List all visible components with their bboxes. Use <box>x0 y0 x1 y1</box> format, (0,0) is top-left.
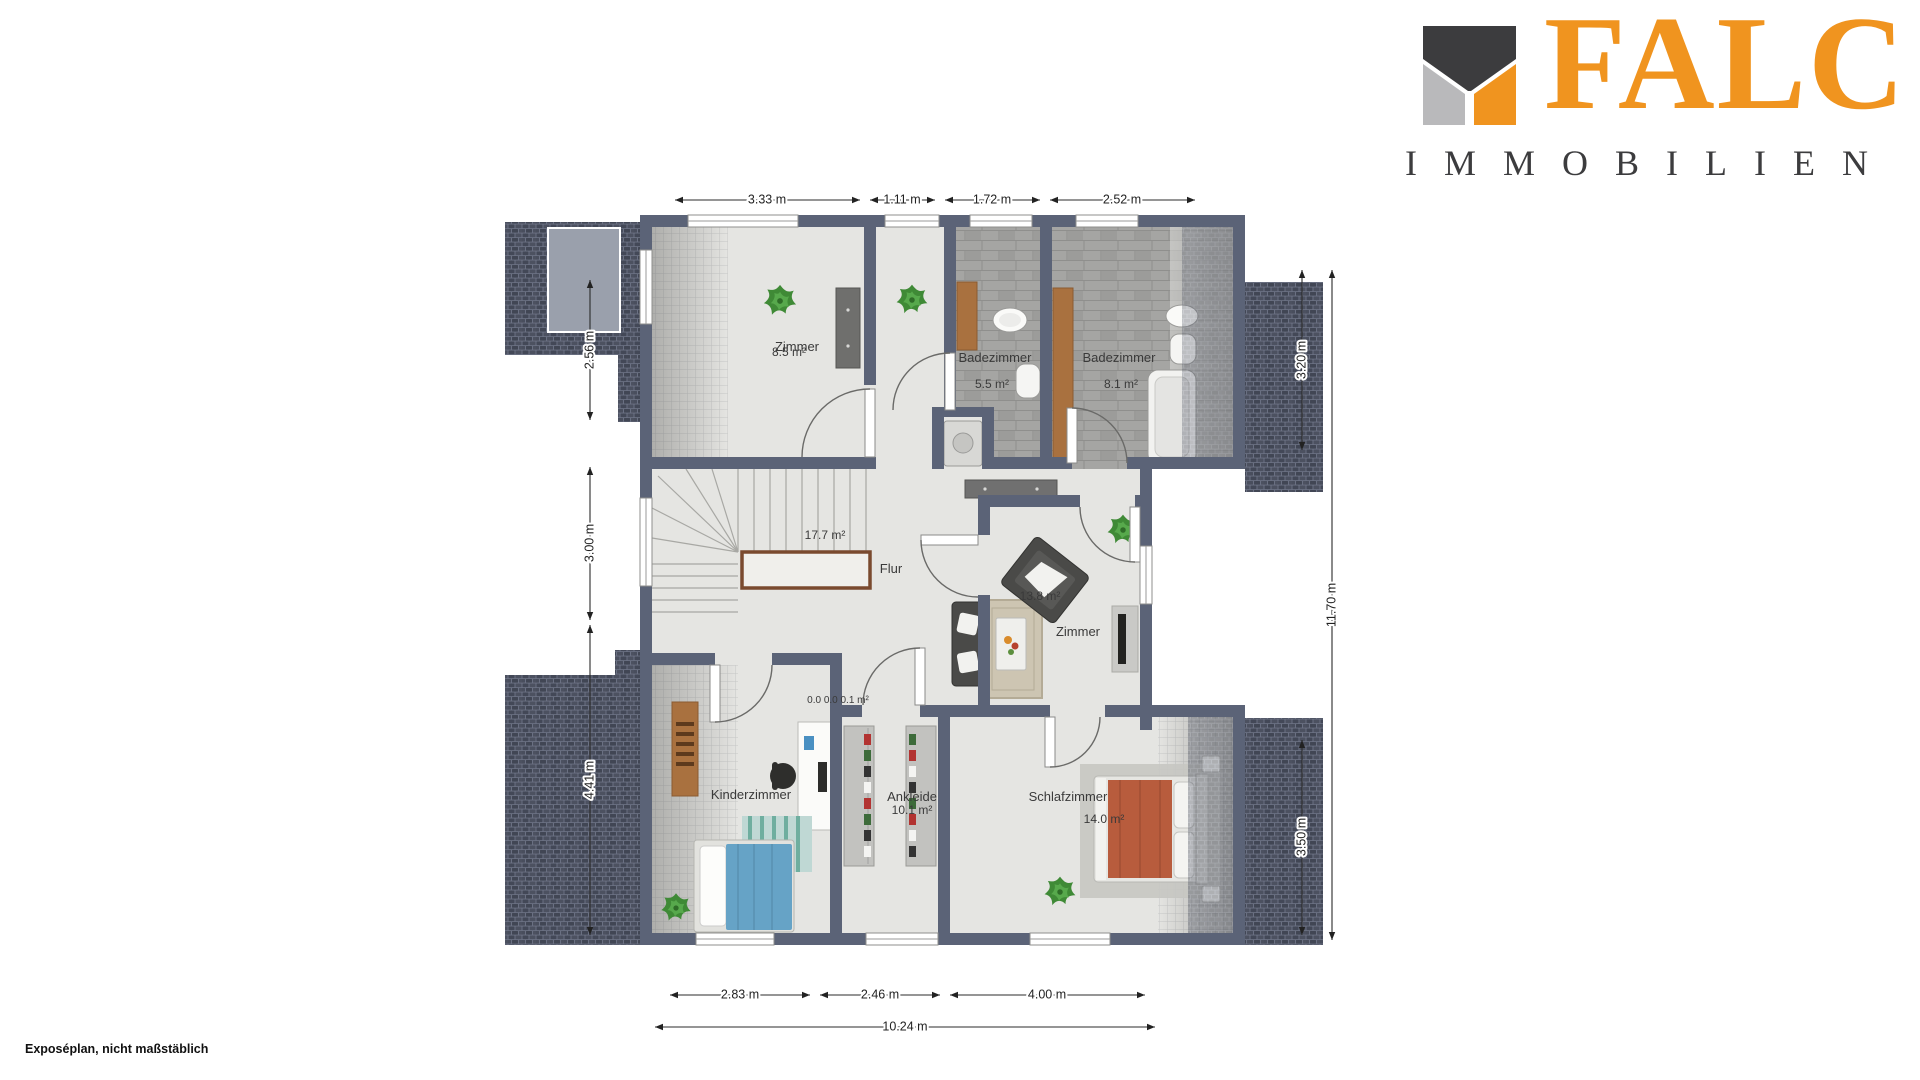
svg-text:4.41 m: 4.41 m <box>582 761 596 799</box>
room-area: 10.1 m² <box>892 803 933 817</box>
window <box>1140 546 1152 604</box>
kids-bed <box>694 840 794 932</box>
roof-overlays <box>1182 227 1233 933</box>
room-label: Ankleide <box>887 789 937 804</box>
svg-text:1.11 m: 1.11 m <box>883 192 920 206</box>
window <box>688 215 798 227</box>
falc-logo-mark-icon <box>1421 26 1518 125</box>
room-label: Zimmer <box>775 339 820 354</box>
svg-text:11.70 m: 11.70 m <box>1324 583 1338 627</box>
vanity-cabinet <box>957 282 977 350</box>
room-area: 14.0 m² <box>1084 812 1125 826</box>
window <box>640 498 652 586</box>
window <box>866 933 938 945</box>
logo-text: FALC <box>1544 0 1907 130</box>
window <box>885 215 939 227</box>
coffee-table <box>996 618 1026 670</box>
svg-text:2.83 m: 2.83 m <box>721 987 759 1001</box>
svg-text:3.33 m: 3.33 m <box>748 192 786 206</box>
window <box>640 250 652 324</box>
tv <box>1118 614 1126 664</box>
monitor <box>818 762 827 792</box>
svg-text:10.24 m: 10.24 m <box>882 1019 927 1033</box>
svg-text:2.46 m: 2.46 m <box>861 987 899 1001</box>
svg-text:2.56 m: 2.56 m <box>582 331 596 369</box>
svg-text:2.52 m: 2.52 m <box>1103 192 1141 206</box>
floor-plan: 8.5 m² Zimmer Badezimmer 5.5 m² Badezimm… <box>480 170 1360 1060</box>
svg-text:3.00 m: 3.00 m <box>582 524 596 562</box>
wardrobe <box>836 288 860 368</box>
bookshelf <box>672 702 698 796</box>
window <box>696 933 774 945</box>
room-area: 0.0 0.0 0.1 m² <box>807 695 869 706</box>
svg-text:3.50 m: 3.50 m <box>1294 818 1308 856</box>
dimension-top: 3.33 m 1.11 m 1.72 m 2.52 m <box>675 192 1195 206</box>
dimension-bottom: 2.83 m 2.46 m 4.00 m 10.24 m <box>655 987 1155 1033</box>
room-label: Badezimmer <box>1083 350 1157 365</box>
room-label: Badezimmer <box>959 350 1033 365</box>
wardrobe-left <box>844 726 874 866</box>
room-area: 13.8 m² <box>1020 589 1061 603</box>
window <box>1076 215 1138 227</box>
svg-text:4.00 m: 4.00 m <box>1028 987 1066 1001</box>
room-label: Flur <box>880 561 903 576</box>
toilet <box>1016 364 1040 398</box>
window <box>1030 933 1110 945</box>
room-area: 5.5 m² <box>975 377 1009 391</box>
svg-text:3.20 m: 3.20 m <box>1294 341 1308 379</box>
logo-subtext: IMMOBILIEN <box>1405 142 1915 184</box>
stair-void <box>742 552 870 588</box>
room-label: Schlafzimmer <box>1029 789 1108 804</box>
room-area: 8.1 m² <box>1104 377 1138 391</box>
room-label: Kinderzimmer <box>711 787 792 802</box>
svg-text:1.72 m: 1.72 m <box>973 192 1011 206</box>
disclaimer-note: Exposéplan, nicht maßstäblich <box>25 1042 208 1056</box>
room-area: 17.7 m² <box>805 528 846 542</box>
window <box>970 215 1032 227</box>
room-label: Zimmer <box>1056 624 1101 639</box>
falc-logo: FALC IMMOBILIEN <box>1405 26 1915 184</box>
page: FALC IMMOBILIEN <box>0 0 1920 1080</box>
dormer <box>548 228 620 332</box>
